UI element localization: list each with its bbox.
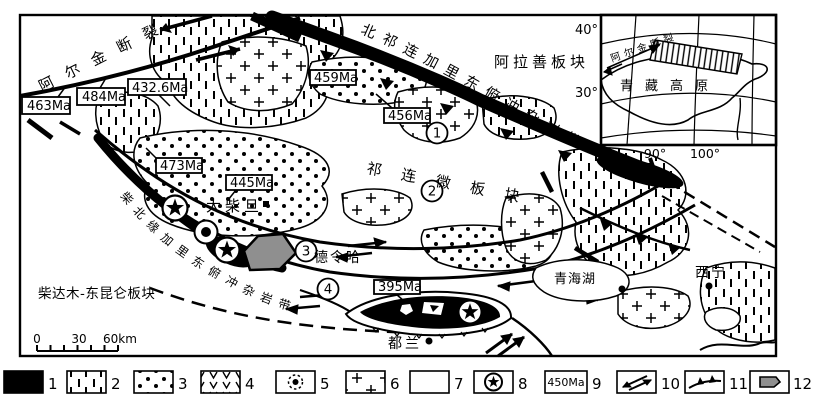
legend-num-3: 3 [178,375,188,393]
legend-item-8: 8 [474,371,528,393]
legend-item-4: 4 [201,371,255,393]
city-dot-daqaidam [263,201,269,207]
legend-swatch-vdash [67,371,106,393]
age-label-484: 484Ma [82,90,126,105]
legend-num-12: 12 [793,375,812,393]
legend-num-1: 1 [48,375,58,393]
legend-num-7: 7 [454,375,464,393]
legend-num-2: 2 [111,375,121,393]
legend-num-11: 11 [729,375,748,393]
legend-num-6: 6 [390,375,400,393]
age-label-463: 463Ma [27,99,71,114]
inset-map: 阿尔金断裂 青藏高原 40° 30° 90° 100° [575,15,776,161]
inset-lat-40: 40° [575,23,598,38]
age-label-473: 473Ma [160,159,204,174]
age-label-459: 459Ma [314,71,358,86]
inset-lat-30: 30° [575,86,598,101]
legend-item-5: 5 [276,371,330,393]
legend-item-1: 1 [4,371,58,393]
lake-label-qinghai: 青海湖 [554,272,596,287]
city-label-dulan: 都兰 [388,336,422,352]
legend-item-3: 3 [134,371,188,393]
city-dot-xining [706,283,713,290]
legend-item-6: 6 [346,371,400,393]
age-label-456: 456Ma [388,109,432,124]
inset-lon-100: 100° [690,146,720,161]
inset-lon-90: 90° [644,146,666,161]
map-canvas: 463Ma 484Ma 432.6Ma 459Ma 456Ma 473Ma 44… [0,0,816,410]
scale-60km: 60km [103,332,137,346]
age-label-395: 395Ma [378,280,422,295]
city-label-xining: 西宁 [695,264,727,281]
legend-item-10: 10 [617,371,680,393]
legend-num-10: 10 [661,375,680,393]
scale-30: 30 [71,332,86,346]
city-dot-dulan [426,338,433,345]
garnet-peridotite-marker [195,221,218,244]
legend-gray-massif-icon [760,377,780,387]
zone-4-number: 4 [324,282,333,298]
legend: 1 2 3 4 5 6 7 [4,371,812,393]
lake-dot-qinghai [619,286,626,293]
inset-plateau-label: 青藏高原 [620,78,720,94]
legend-num-9: 9 [592,375,602,393]
city-label-daqaidam: 大柴旦 [206,197,263,215]
legend-num-4: 4 [245,375,255,393]
qaidam-kunlun-plate-label: 柴达木-东昆仑板块 [38,286,155,302]
city-label-delingha: 德令哈 [314,250,362,266]
legend-num-5: 5 [320,375,330,393]
scale-0: 0 [33,332,41,346]
legend-item-12: 12 [750,371,812,393]
legend-item-2: 2 [67,371,121,393]
legend-age-sample: 450Ma [547,376,584,389]
legend-swatch-black-melange [4,371,43,393]
legend-item-7: 7 [410,371,464,393]
alxa-plate-label: 阿拉善板块 [494,53,589,71]
geologic-sketch-map-figure: 463Ma 484Ma 432.6Ma 459Ma 456Ma 473Ma 44… [0,0,816,410]
eclogite-star-dulan [459,301,482,324]
legend-num-8: 8 [518,375,528,393]
zone-1-number: 1 [433,126,442,142]
legend-item-11: 11 [685,371,748,393]
legend-item-9: 450Ma 9 [545,371,602,393]
zone-3-number: 3 [302,244,311,260]
legend-swatch-volcanic-v [201,371,240,393]
age-label-432-6: 432.6Ma [132,81,188,96]
legend-swatch-dots [134,371,173,393]
legend-swatch-granite [346,371,385,393]
age-label-445: 445Ma [230,176,274,191]
legend-swatch-blank [410,371,449,393]
